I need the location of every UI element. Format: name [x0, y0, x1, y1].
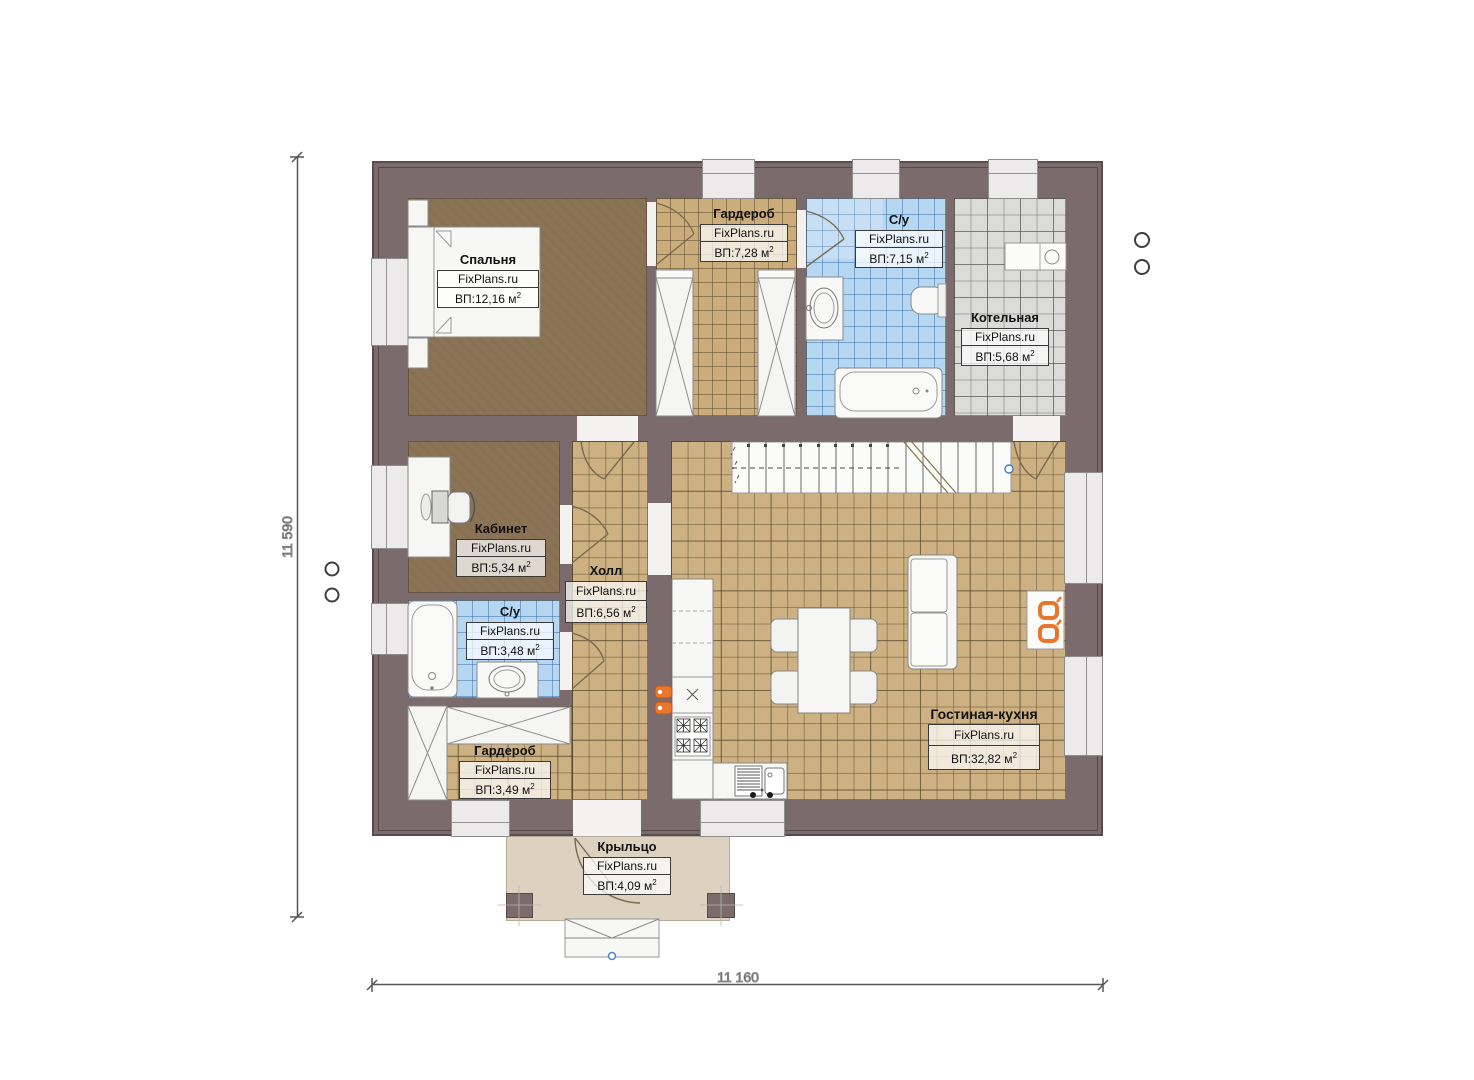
- svg-text:11 590: 11 590: [279, 516, 295, 558]
- svg-text:11 160: 11 160: [717, 969, 759, 985]
